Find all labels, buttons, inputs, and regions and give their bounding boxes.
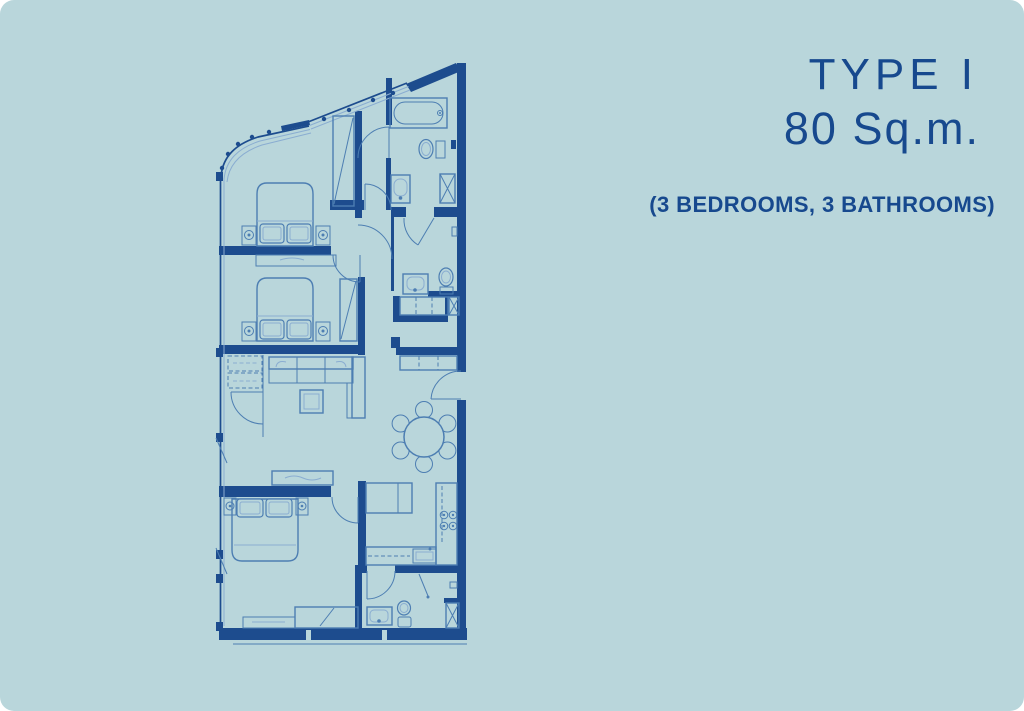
coffee-table	[300, 390, 323, 413]
sofa-back	[269, 357, 353, 369]
floor-plan-drawing	[0, 0, 1024, 711]
bedroom-1-furniture	[242, 116, 354, 266]
floor-plan-card: TYPE I 80 Sq.m. (3 BEDROOMS, 3 BATHROOMS…	[0, 0, 1024, 711]
bathroom-2-fixtures	[400, 227, 459, 315]
bathroom-3-fixtures	[367, 582, 459, 628]
dresser	[256, 255, 336, 266]
towel-rail	[450, 582, 457, 588]
dining-chair	[416, 456, 433, 473]
dining-table	[404, 417, 444, 457]
bedroom-2-furniture	[242, 278, 357, 341]
dining-set	[392, 402, 456, 473]
sofa-seat	[269, 369, 353, 383]
living-room-furniture	[228, 355, 365, 485]
kitchen-fixtures	[366, 483, 457, 565]
counter	[436, 483, 457, 565]
chaise	[352, 357, 365, 418]
door-swings	[231, 127, 461, 599]
island-counter	[366, 483, 412, 513]
towel-rail	[452, 227, 457, 236]
linen-closet	[400, 297, 448, 315]
bathroom-1-fixtures	[390, 98, 455, 203]
stove	[440, 511, 457, 530]
toilet-tank	[398, 617, 411, 627]
bedroom-3-furniture	[224, 498, 358, 628]
toilet-tank	[436, 141, 445, 158]
interior-walls	[219, 78, 466, 640]
foyer-fixtures	[400, 356, 457, 370]
shoe-cabinet	[400, 356, 457, 370]
dining-chair	[416, 402, 433, 419]
